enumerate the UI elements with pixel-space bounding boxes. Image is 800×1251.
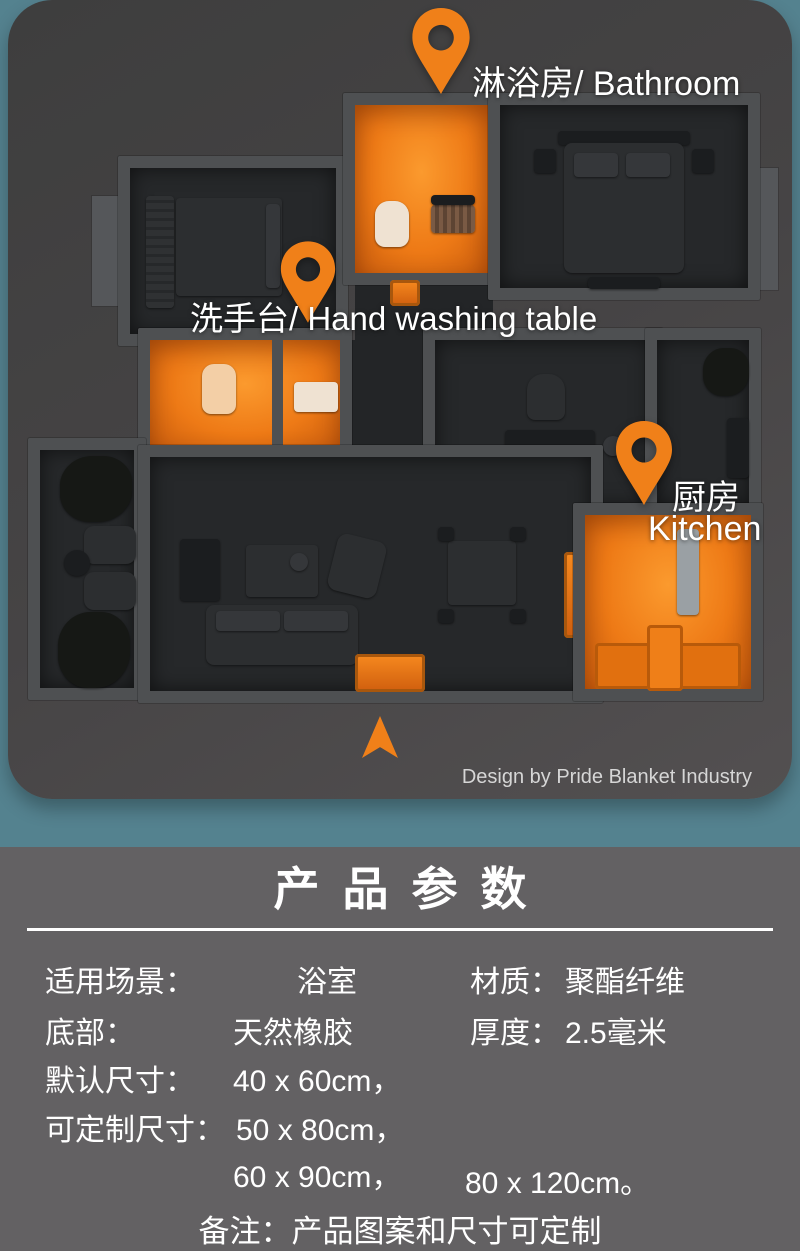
- design-credit: Design by Pride Blanket Industry: [462, 766, 752, 789]
- coffee-table: [246, 545, 318, 597]
- tv-cabinet: [180, 539, 220, 601]
- bench-top: [431, 195, 475, 205]
- washing-machine: [294, 382, 338, 412]
- room-balcony: [28, 438, 146, 700]
- hand-washing-pin-label: 洗手台/ Hand washing table: [190, 292, 597, 340]
- decor-bowl: [290, 553, 308, 571]
- section-title: 产品参数: [0, 853, 800, 919]
- dining-table: [448, 541, 516, 605]
- param-value: 聚酯纤维: [565, 957, 685, 1001]
- param-value: 60 x 90cm，: [233, 1152, 401, 1196]
- param-label: 默认尺寸：: [45, 1056, 195, 1100]
- kitchen-pin-label-en: Kitchen: [648, 510, 761, 549]
- divider-wall: [272, 340, 283, 450]
- armchair: [326, 532, 389, 600]
- param-label: 厚度：: [470, 1008, 560, 1052]
- room-bedroom-master: [488, 93, 760, 300]
- nightstand: [692, 149, 714, 173]
- toilet: [527, 374, 565, 420]
- sofa-cushion: [216, 611, 280, 631]
- sofa-cushion: [284, 611, 348, 631]
- stool: [438, 527, 454, 541]
- room-shower-bathroom: [343, 93, 500, 285]
- plant: [60, 456, 132, 522]
- param-value: 80 x 120cm。: [465, 1158, 650, 1202]
- floorplan-hero: 淋浴房/ Bathroom 洗手台/ Hand washing table 厨房…: [0, 0, 800, 847]
- toilet: [202, 364, 236, 414]
- plant: [703, 348, 749, 396]
- note-text: 备注：产品图案和尺寸可定制: [0, 1206, 800, 1251]
- stool: [438, 609, 454, 623]
- side-table: [64, 550, 90, 576]
- stool: [510, 609, 526, 623]
- chair: [84, 526, 136, 564]
- product-poster: 淋浴房/ Bathroom 洗手台/ Hand washing table 厨房…: [0, 0, 800, 1248]
- kitchen-island: [647, 625, 683, 691]
- title-divider: [27, 928, 773, 931]
- shelf: [727, 418, 749, 478]
- bath-bench: [431, 205, 475, 233]
- chair: [84, 572, 136, 610]
- map-pin-icon: [408, 6, 474, 96]
- room-washroom: [138, 328, 352, 462]
- product-parameters-section: 产品参数 适用场景： 浴室 材质： 聚酯纤维 底部： 天然橡胶 厚度： 2.5毫…: [0, 847, 800, 1248]
- param-value: 浴室: [297, 957, 357, 1001]
- pillow: [626, 153, 670, 177]
- param-label: 可定制尺寸：: [45, 1105, 225, 1149]
- pillow: [574, 153, 618, 177]
- plant: [58, 612, 130, 688]
- param-label: 底部：: [45, 1008, 135, 1052]
- doormat: [355, 654, 425, 692]
- param-value: 40 x 60cm，: [233, 1056, 401, 1100]
- param-value: 2.5毫米: [565, 1008, 667, 1052]
- param-label: 材质：: [470, 957, 560, 1001]
- map-pin-icon: [612, 418, 676, 508]
- toilet: [375, 201, 409, 247]
- wardrobe: [146, 196, 174, 308]
- param-value: 50 x 80cm，: [236, 1105, 404, 1149]
- room-living: [138, 445, 603, 703]
- stool: [510, 527, 526, 541]
- param-value: 天然橡胶: [233, 1008, 353, 1052]
- nightstand: [534, 149, 556, 173]
- param-label: 适用场景：: [45, 957, 195, 1001]
- bathroom-pin-label: 淋浴房/ Bathroom: [472, 56, 740, 105]
- bed-bench: [588, 277, 660, 289]
